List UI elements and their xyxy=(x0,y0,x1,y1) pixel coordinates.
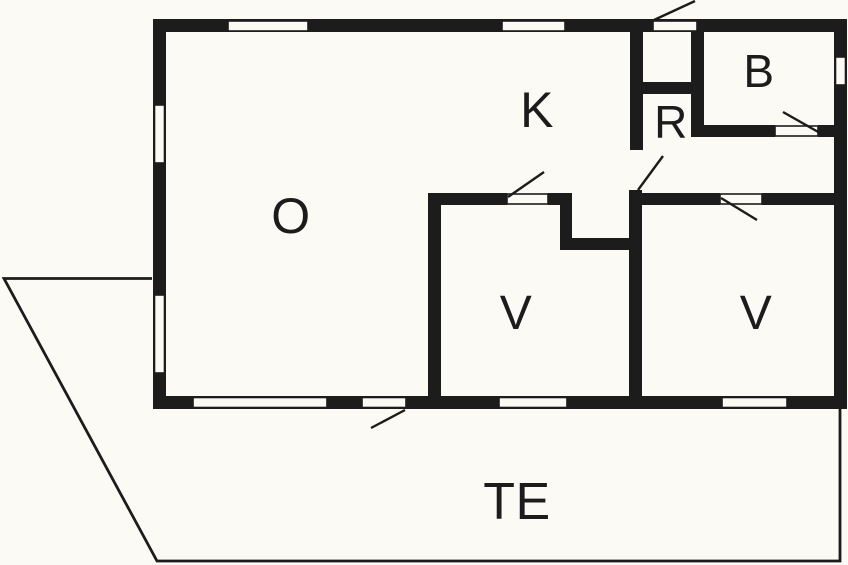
wall-bath-bottom-right xyxy=(818,125,834,137)
wall-bedroom-left-west xyxy=(428,193,441,396)
room-label-te: TE xyxy=(483,473,550,531)
floor-plan-canvas: O K R B V V TE xyxy=(0,0,848,565)
window-right-bath xyxy=(836,57,846,85)
window-bottom-bedroom-right xyxy=(722,398,787,408)
window-left-upper xyxy=(155,105,165,163)
window-bottom-bedroom-left xyxy=(499,398,567,408)
plan-background xyxy=(0,0,848,565)
door-opening-kitchen xyxy=(507,194,548,204)
wall-bedroom-divider xyxy=(629,190,642,396)
floor-plan-drawing: O K R B V V TE xyxy=(0,0,848,565)
wall-hall-right-a xyxy=(629,193,720,205)
window-left-lower xyxy=(155,295,165,373)
room-label-v-left: V xyxy=(500,287,533,340)
room-label-v-right: V xyxy=(740,287,773,340)
wall-hall-right-b xyxy=(762,193,834,205)
wall-bath-bottom-left xyxy=(691,125,775,137)
room-label-b: B xyxy=(743,45,774,97)
room-label-k: K xyxy=(520,82,554,138)
wall-entry-bath xyxy=(691,32,704,137)
room-label-r: R xyxy=(654,96,688,148)
window-top-living xyxy=(228,21,308,31)
door-opening-terrace xyxy=(362,398,406,408)
window-top-kitchen xyxy=(502,21,565,31)
door-opening-front xyxy=(653,21,697,31)
window-bottom-living xyxy=(193,398,327,408)
room-label-o: O xyxy=(271,188,310,244)
